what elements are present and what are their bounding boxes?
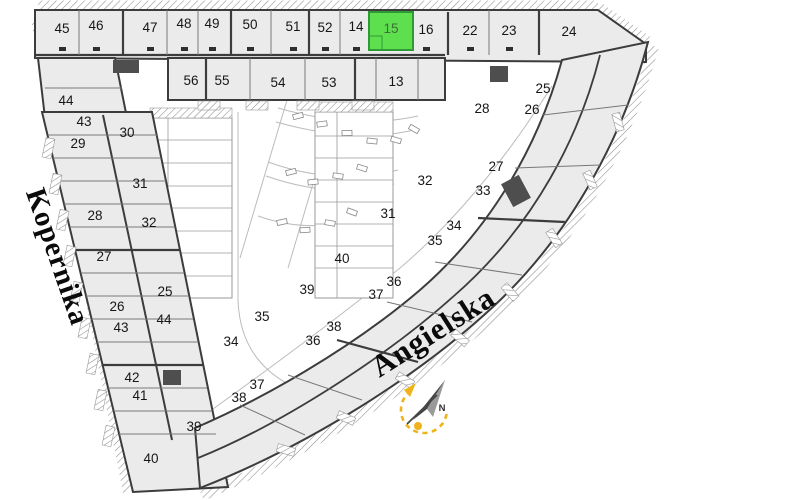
unit-label[interactable]: 43 <box>76 114 91 129</box>
unit-label[interactable]: 39 <box>186 419 201 434</box>
unit-label[interactable]: 38 <box>326 319 341 334</box>
unit-label[interactable]: 44 <box>58 93 74 108</box>
unit-label[interactable]: 41 <box>132 388 147 403</box>
unit-label[interactable]: 33 <box>475 183 490 198</box>
unit-label[interactable]: 35 <box>254 309 269 324</box>
unit-label[interactable]: 48 <box>176 16 191 31</box>
unit-label[interactable]: 45 <box>54 21 69 36</box>
unit-label[interactable]: 46 <box>88 18 103 33</box>
unit-label[interactable]: 13 <box>388 74 403 89</box>
unit-label[interactable]: 34 <box>446 218 462 233</box>
unit-label[interactable]: 36 <box>386 274 401 289</box>
unit-label[interactable]: 50 <box>242 17 257 32</box>
unit-label[interactable]: 24 <box>561 24 577 39</box>
unit-label[interactable]: 29 <box>70 136 85 151</box>
unit-label[interactable]: 54 <box>270 75 286 90</box>
unit-label[interactable]: 26 <box>109 299 124 314</box>
unit-label[interactable]: 25 <box>157 284 172 299</box>
floor-plan-drawing: N 45464748495051521415162223245655545313… <box>0 0 797 500</box>
north-label: N <box>439 403 446 414</box>
unit-label[interactable]: 44 <box>156 312 172 327</box>
unit-label[interactable]: 37 <box>368 287 383 302</box>
unit-label[interactable]: 32 <box>141 215 156 230</box>
unit-label[interactable]: 22 <box>462 23 477 38</box>
unit-label[interactable]: 23 <box>501 23 516 38</box>
compass: N <box>401 380 447 433</box>
unit-label[interactable]: 39 <box>299 282 314 297</box>
unit-label[interactable]: 53 <box>321 75 336 90</box>
unit-label[interactable]: 37 <box>249 377 264 392</box>
unit-label[interactable]: 34 <box>223 334 239 349</box>
unit-label[interactable]: 28 <box>87 208 102 223</box>
unit-label[interactable]: 27 <box>96 249 111 264</box>
unit-label[interactable]: 32 <box>417 173 432 188</box>
compass-arc-dot <box>414 422 422 430</box>
floor-plan: N 45464748495051521415162223245655545313… <box>0 0 797 500</box>
unit-label[interactable]: 36 <box>305 333 320 348</box>
unit-label[interactable]: 52 <box>317 20 332 35</box>
unit-label[interactable]: 40 <box>143 451 158 466</box>
unit-label[interactable]: 16 <box>418 22 433 37</box>
unit-label[interactable]: 38 <box>231 390 246 405</box>
unit-label[interactable]: 31 <box>132 176 147 191</box>
unit-label[interactable]: 25 <box>535 81 550 96</box>
unit-label[interactable]: 55 <box>214 73 229 88</box>
unit-label[interactable]: 47 <box>142 20 157 35</box>
unit-label[interactable]: 42 <box>124 370 139 385</box>
parking-strips <box>150 102 393 298</box>
unit-label[interactable]: 26 <box>524 102 539 117</box>
unit-label[interactable]: 56 <box>183 73 198 88</box>
unit-label[interactable]: 28 <box>474 101 489 116</box>
unit-label[interactable]: 14 <box>348 19 364 34</box>
unit-label[interactable]: 35 <box>427 233 442 248</box>
unit-label[interactable]: 31 <box>380 206 395 221</box>
unit-label-selected[interactable]: 15 <box>383 21 398 36</box>
unit-label[interactable]: 43 <box>113 320 128 335</box>
unit-label[interactable]: 40 <box>334 251 349 266</box>
unit-label[interactable]: 30 <box>119 125 134 140</box>
unit-label[interactable]: 49 <box>204 16 219 31</box>
unit-label[interactable]: 27 <box>488 159 503 174</box>
unit-label[interactable]: 51 <box>285 19 300 34</box>
